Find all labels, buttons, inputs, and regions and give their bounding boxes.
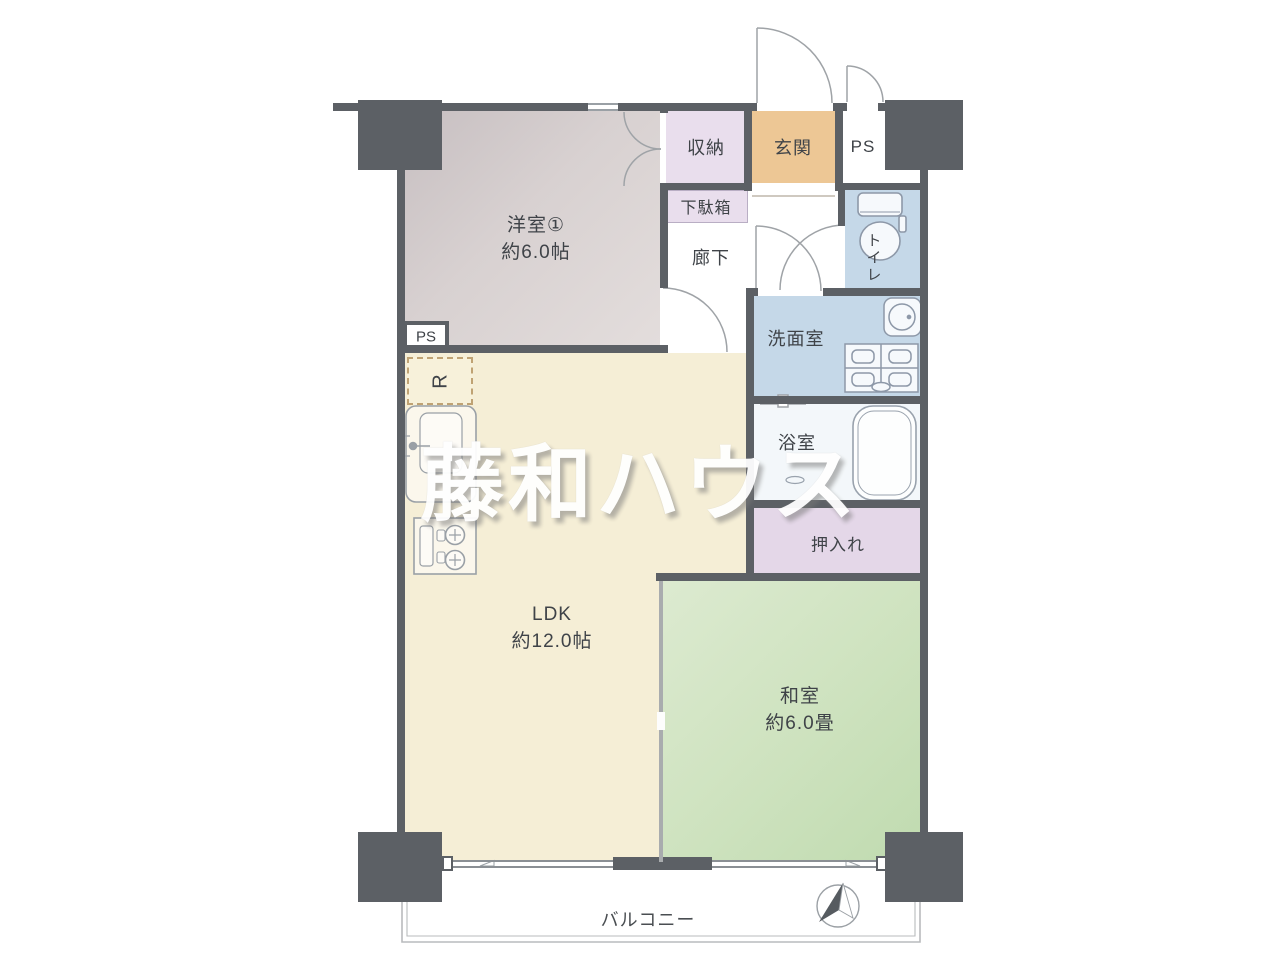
wall-segment xyxy=(838,190,845,226)
wall-segment xyxy=(660,183,748,190)
room-name: 洋室① xyxy=(501,212,570,239)
wall-segment xyxy=(656,573,922,581)
room-label-refrigerator-space: R xyxy=(430,373,453,388)
room-label-shoe-cabinet: 下駄箱 xyxy=(680,194,731,218)
washing-machine-icon xyxy=(845,344,918,392)
window-top xyxy=(588,103,618,111)
window-line xyxy=(452,866,613,868)
room-size: 約6.0畳 xyxy=(765,710,834,737)
room-label-entrance: 玄関 xyxy=(774,134,812,160)
pillar-top-left xyxy=(358,100,442,170)
wall-segment xyxy=(838,183,922,190)
fusuma-partition-gap xyxy=(657,712,665,730)
room-label-washroom: 洗面室 xyxy=(768,325,825,351)
compass-icon xyxy=(817,883,859,927)
window-line xyxy=(712,860,876,862)
room-label-balcony: バルコニー xyxy=(601,906,696,932)
pillar-top-right xyxy=(885,100,963,170)
room-name: 和室 xyxy=(765,683,834,710)
storage-door-arcs xyxy=(624,112,661,186)
pillar-bottom-left xyxy=(358,832,442,902)
window-line xyxy=(452,860,613,862)
room-label-bathroom: 浴室 xyxy=(778,429,816,455)
room-label-ldk: LDK 約12.0帖 xyxy=(512,601,593,655)
room-label-western-room: 洋室① 約6.0帖 xyxy=(501,212,570,266)
washbasin-icon xyxy=(884,298,921,336)
wall-segment xyxy=(920,103,928,832)
room-label-pipe-space-top: PS xyxy=(851,137,876,157)
wall-segment xyxy=(660,103,668,113)
floor-plan: 藤和ハウス 洋室① 約6.0帖 LDK 約12.0帖 和室 約6.0畳 収納 玄… xyxy=(0,0,1280,960)
pillar-bottom-right xyxy=(885,832,963,902)
room-size: 約12.0帖 xyxy=(512,628,593,655)
window-end-cap xyxy=(876,856,887,871)
wall-segment xyxy=(835,103,843,191)
wall-segment xyxy=(397,103,405,832)
wall-segment xyxy=(744,103,752,191)
room-label-closet: 押入れ xyxy=(811,531,865,556)
pipe-space-door-arc xyxy=(847,66,883,102)
room-label-toilet: トイレ xyxy=(863,233,884,284)
room-size: 約6.0帖 xyxy=(501,239,570,266)
room-label-storage: 収納 xyxy=(687,134,725,160)
window-end-cap xyxy=(442,856,453,871)
room-name: LDK xyxy=(512,601,593,628)
room-label-hallway: 廊下 xyxy=(692,244,730,270)
wall-segment xyxy=(397,345,668,353)
wall-segment xyxy=(754,396,922,404)
wall-segment xyxy=(442,103,588,111)
wall-segment xyxy=(823,288,922,296)
room-label-pipe-space-kitchen: PS xyxy=(416,329,436,346)
entrance-door-arc xyxy=(757,28,832,103)
window-line xyxy=(712,866,876,868)
wall-segment xyxy=(618,103,757,111)
western-room-door-arc xyxy=(663,288,727,352)
room-label-japanese-room: 和室 約6.0畳 xyxy=(765,683,834,737)
wall-segment xyxy=(660,185,668,288)
